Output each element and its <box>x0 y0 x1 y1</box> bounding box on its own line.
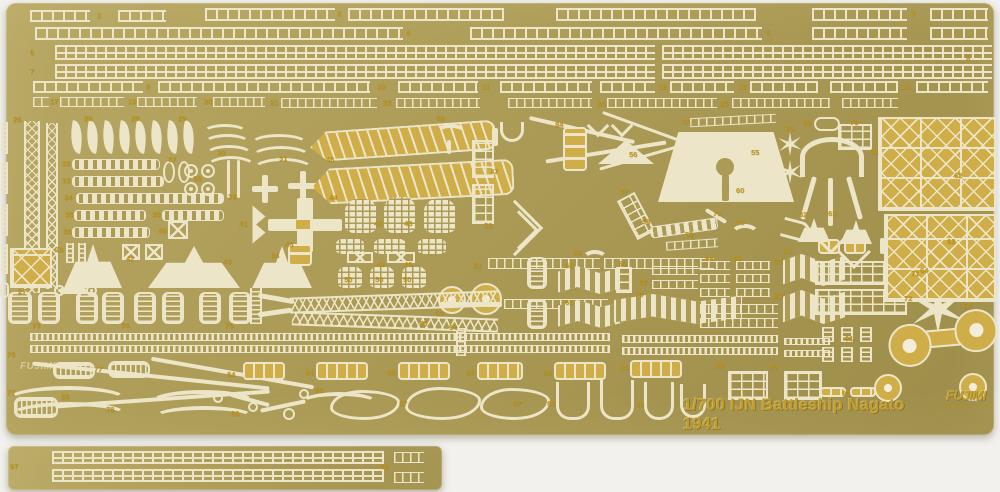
part-number-label: 91 <box>845 335 853 343</box>
part-number-label: 51 <box>473 262 481 270</box>
part-number-label: 60 <box>736 187 744 195</box>
part-number-label: 84 <box>466 369 474 377</box>
part-shape-vlad <box>1 122 8 154</box>
part-number-label: 62 <box>947 238 955 246</box>
part-shape-rail <box>30 10 90 22</box>
part-number-label: 54 <box>682 118 690 126</box>
part-number-label: 40 <box>158 227 166 235</box>
part-number-label: 97 <box>10 463 18 471</box>
part-shape-goldstack <box>243 362 285 380</box>
part-shape-rail <box>670 81 734 93</box>
part-shape-srail <box>281 98 377 108</box>
part-shape-fin <box>179 120 197 154</box>
part-number-label: 86 <box>315 387 323 395</box>
part-number-label: 84 <box>305 369 313 377</box>
part-number-label: 87 <box>513 400 521 408</box>
part-number-label: 78 <box>106 406 114 414</box>
part-number-label: 88 <box>547 400 555 408</box>
part-shape-cage <box>229 292 251 324</box>
part-shape-scurve <box>405 387 481 420</box>
part-shape-rail <box>118 10 166 22</box>
part-number-label: 84 <box>619 364 627 372</box>
part-number-label: 37 <box>168 156 176 164</box>
part-shape-fin <box>99 120 117 154</box>
part-shape-rail3 <box>662 64 992 79</box>
part-shape-goldstack <box>630 360 682 378</box>
part-shape-hatchP <box>309 120 497 163</box>
part-shape-rail3 <box>52 469 384 482</box>
part-number-label: 16 <box>902 83 910 91</box>
part-number-label: 73 <box>32 322 40 330</box>
photo-etch-sheet-photo: 1234567891011121316171920212224252627282… <box>0 0 1000 492</box>
part-shape-vlad <box>66 243 74 263</box>
part-shape-scurve <box>330 390 400 420</box>
part-shape-chain <box>622 335 778 343</box>
part-number-label: 88 <box>636 401 644 409</box>
part-shape-winbox <box>72 227 150 238</box>
part-shape-winbox <box>72 159 160 170</box>
part-number-label: 86 <box>231 410 239 418</box>
part-number-label: 77 <box>94 366 102 374</box>
part-number-label: 28 <box>55 246 63 254</box>
part-shape-cage <box>76 292 98 324</box>
part-shape-vlad <box>1 162 8 194</box>
part-shape-winbox <box>162 210 224 221</box>
part-number-label: 58 <box>642 218 650 226</box>
part-shape-srail <box>60 97 124 107</box>
part-number-label: 43 <box>223 258 231 266</box>
part-shape-rail3 <box>662 45 992 60</box>
part-shape-cage <box>134 292 156 324</box>
brand-subtitle: FUJIMI MOKEI CO.,LTD. <box>934 404 998 409</box>
part-number-label: 45 <box>285 241 293 249</box>
part-shape-srail <box>700 318 778 328</box>
part-shape-srail <box>607 98 717 108</box>
part-shape-horn <box>730 224 760 246</box>
part-number-label: 9 <box>146 83 150 91</box>
part-shape-shield <box>418 238 446 254</box>
part-shape-fin <box>67 120 85 154</box>
part-shape-rail <box>348 8 504 21</box>
part-shape-grid <box>838 124 872 150</box>
part-shape-rail3 <box>55 64 655 79</box>
part-shape-cage <box>102 292 124 324</box>
part-shape-grid <box>472 184 494 224</box>
part-shape-srail <box>732 98 830 108</box>
part-number-label: 86 <box>61 393 69 401</box>
part-shape-rail <box>33 81 143 93</box>
part-shape-rail3 <box>52 451 384 464</box>
part-shape-hatch <box>878 117 996 211</box>
part-shape-srail <box>137 97 197 107</box>
part-shape-srail <box>508 98 592 108</box>
part-shape-fin <box>147 120 165 154</box>
part-number-label: 46 <box>326 156 334 164</box>
part-shape-fin <box>163 120 181 154</box>
part-shape-truss <box>290 290 498 313</box>
part-shape-rail <box>750 81 818 93</box>
part-number-label: 84 <box>387 369 395 377</box>
part-number-label: 98 <box>380 463 388 471</box>
part-number-label: 90 <box>769 363 777 371</box>
part-shape-winbox <box>649 217 718 238</box>
part-number-label: 84 <box>227 371 235 379</box>
part-number-label: 72 <box>904 295 912 303</box>
part-number-label: 39 <box>228 193 236 201</box>
part-shape-bbar <box>722 175 729 201</box>
part-shape-tri <box>253 222 266 244</box>
part-number-label: 21 <box>270 99 278 107</box>
part-shape-xbox <box>145 244 163 260</box>
part-number-label: 8 <box>966 55 970 63</box>
part-number-label: 50 <box>375 276 383 284</box>
part-shape-rail <box>158 81 370 93</box>
part-shape-horn <box>436 124 466 140</box>
part-number-label: 29 <box>178 115 186 123</box>
part-shape-vlad <box>1 244 8 274</box>
part-number-label: 25 <box>720 100 728 108</box>
part-shape-vlad <box>822 327 834 342</box>
part-shape-vlad <box>78 243 86 263</box>
part-number-label: 44 <box>329 194 337 202</box>
part-shape-srail <box>394 472 424 483</box>
part-number-label: 65 <box>565 299 573 307</box>
part-shape-goldstack <box>554 362 606 380</box>
part-number-label: 83 <box>573 249 581 257</box>
part-shape-bar <box>258 308 292 318</box>
part-shape-bar <box>237 160 240 198</box>
part-number-label: 49 <box>376 261 384 269</box>
part-number-label: 53 <box>435 310 443 318</box>
part-shape-rail3 <box>55 45 655 60</box>
part-shape-goldstack <box>477 362 523 380</box>
part-number-label: 59 <box>685 231 693 239</box>
part-number-label: 24 <box>597 100 605 108</box>
part-number-label: 38 <box>193 175 201 183</box>
part-number-label: 6 <box>30 49 34 57</box>
part-shape-srail <box>396 98 480 108</box>
part-shape-cage <box>8 292 32 324</box>
part-shape-bar <box>846 176 863 220</box>
part-shape-truss <box>292 311 498 332</box>
part-shape-bar <box>447 140 451 154</box>
part-shape-ringp <box>283 408 295 420</box>
part-number-label: 13 <box>738 83 746 91</box>
part-shape-chain <box>30 333 610 341</box>
part-number-label: 95 <box>785 125 793 133</box>
part-shape-ringp <box>163 161 175 183</box>
part-number-label: 42 <box>126 255 134 263</box>
part-number-label: 34 <box>64 194 72 202</box>
part-number-label: 26 <box>13 116 21 124</box>
part-shape-rail <box>205 8 335 21</box>
part-shape-srail <box>700 274 730 283</box>
part-shape-shield <box>345 199 377 233</box>
part-number-label: 66 <box>618 260 626 268</box>
part-shape-blob <box>814 117 840 131</box>
part-number-label: 85 <box>419 320 427 328</box>
part-shape-rail <box>556 8 756 21</box>
part-shape-srail <box>394 452 424 463</box>
part-number-label: 94 <box>449 324 457 332</box>
part-number-label: 7 <box>30 68 34 76</box>
part-shape-rail <box>500 81 592 93</box>
part-shape-cage <box>527 257 547 289</box>
part-number-label: 57 <box>620 188 628 196</box>
part-shape-srail <box>213 97 265 107</box>
part-number-label: 61 <box>870 148 878 156</box>
part-number-label: 64 <box>920 267 928 275</box>
part-number-label: 79 <box>713 210 721 218</box>
part-number-label: 29 <box>84 115 92 123</box>
part-number-label: 74 <box>121 322 129 330</box>
part-shape-dotc <box>201 182 215 196</box>
part-shape-rail <box>916 81 988 93</box>
part-number-label: 19 <box>128 98 136 106</box>
part-shape-rail <box>35 27 403 40</box>
part-number-label: 32 <box>62 160 70 168</box>
part-shape-rail <box>830 81 898 93</box>
part-shape-fin <box>131 120 149 154</box>
part-shape-zig <box>558 266 622 294</box>
part-number-label: 88 <box>436 115 444 123</box>
part-shape-winbox <box>72 176 164 187</box>
part-shape-goldstackV <box>563 127 587 171</box>
part-number-label: 84 <box>555 121 563 129</box>
part-shape-hatch <box>10 248 52 288</box>
sheet-title: 1/700 IJN Battleship Nagato 1941 <box>683 396 943 434</box>
part-number-label: 84 <box>543 369 551 377</box>
brand-name: FUJIMI <box>934 388 998 403</box>
part-number-label: 75 <box>225 322 233 330</box>
part-shape-rail <box>930 8 988 21</box>
part-number-label: 5 <box>766 29 770 37</box>
part-number-label: 3 <box>911 10 915 18</box>
part-shape-vlad <box>860 347 872 362</box>
part-shape-srail <box>700 304 778 314</box>
part-number-label: 55 <box>751 149 759 157</box>
part-number-label: 35 <box>152 211 160 219</box>
part-number-label: 33 <box>62 177 70 185</box>
part-shape-dotc <box>184 182 198 196</box>
part-shape-srail <box>736 274 770 283</box>
part-shape-dotc <box>201 164 215 178</box>
part-shape-ubrak <box>600 380 634 420</box>
part-number-label: 12 <box>658 83 666 91</box>
brand-logo: FUJIMI FUJIMI MOKEI CO.,LTD. <box>934 388 998 409</box>
part-number-label: 84 <box>271 252 279 260</box>
part-shape-cage <box>199 292 221 324</box>
part-number-label: 70 <box>635 291 643 299</box>
part-number-label: 22 <box>383 99 391 107</box>
part-number-label: 50 <box>403 276 411 284</box>
part-number-label: 17 <box>50 98 58 106</box>
part-number-label: 67 <box>639 279 647 287</box>
part-shape-cage <box>162 292 184 324</box>
part-shape-goldstack <box>398 362 450 380</box>
part-shape-rail <box>398 81 478 93</box>
part-number-label: 4 <box>406 29 410 37</box>
part-shape-ubrak <box>644 382 674 420</box>
part-shape-goldsq <box>295 219 311 230</box>
etched-brand-logo: FUJIMI <box>20 361 56 372</box>
part-number-label: 31 <box>279 155 287 163</box>
part-shape-hatch <box>884 214 996 302</box>
part-shape-horn <box>582 250 608 268</box>
part-number-label: 62 <box>954 172 962 180</box>
part-shape-ubrak <box>500 122 524 142</box>
part-shape-dogbone <box>886 307 1000 368</box>
part-number-label: 56 <box>629 151 637 159</box>
part-shape-srail <box>690 114 776 127</box>
part-shape-srail <box>700 288 730 297</box>
part-shape-srail <box>736 288 770 297</box>
part-shape-vlad <box>822 347 834 362</box>
part-shape-srail <box>33 97 49 107</box>
part-number-label: 65 <box>774 292 782 300</box>
part-shape-bcirc <box>716 158 734 176</box>
part-shape-srail <box>652 266 698 275</box>
part-shape-winbox <box>76 193 224 204</box>
part-number-label: 35 <box>65 211 73 219</box>
part-number-label: 81 <box>783 247 791 255</box>
part-shape-grid <box>616 267 632 293</box>
part-shape-goldstack <box>316 362 368 380</box>
part-shape-rail <box>470 27 762 40</box>
part-shape-chain <box>622 347 778 355</box>
part-shape-star <box>778 132 802 156</box>
part-number-label: 10 <box>377 83 385 91</box>
part-shape-vlad <box>1 204 8 236</box>
part-number-label: 83 <box>736 219 744 227</box>
part-number-label: 36 <box>63 228 71 236</box>
part-number-label: 30 <box>217 149 225 157</box>
part-number-label: 41 <box>239 220 247 228</box>
part-shape-rail <box>600 81 655 93</box>
part-number-label: 68 <box>705 255 713 263</box>
part-shape-srail <box>842 98 898 108</box>
part-shape-rail <box>930 27 988 40</box>
part-shape-cage <box>38 292 60 324</box>
part-shape-chain <box>30 345 610 353</box>
part-number-label: 52 <box>484 222 492 230</box>
part-number-label: 60 <box>803 119 811 127</box>
part-number-label: 27 <box>18 288 26 296</box>
part-shape-xbox <box>168 221 188 239</box>
part-number-label: 82 <box>799 211 807 219</box>
part-number-label: 65 <box>774 258 782 266</box>
part-number-label: 77 <box>7 389 15 397</box>
part-number-label: 48 <box>374 220 382 228</box>
part-number-label: 49 <box>404 261 412 269</box>
part-number-label: 89 <box>715 362 723 370</box>
part-shape-fin <box>83 120 101 154</box>
part-number-label: 11 <box>482 83 490 91</box>
part-number-label: 71 <box>911 270 919 278</box>
part-shape-vlad <box>860 327 872 342</box>
part-number-label: 1 <box>97 12 101 20</box>
part-number-label: 50 <box>344 276 352 284</box>
part-number-label: 69 <box>733 255 741 263</box>
part-shape-winbox <box>74 210 146 221</box>
part-number-label: 20 <box>204 98 212 106</box>
part-number-label: 47 <box>490 168 498 176</box>
part-shape-fin <box>115 120 133 154</box>
part-number-label: 63 <box>828 210 836 218</box>
part-number-label: 65 <box>565 262 573 270</box>
part-number-label: 64 <box>963 302 971 310</box>
part-shape-ubrak <box>556 382 590 420</box>
part-shape-srail <box>652 280 698 289</box>
part-shape-xbox <box>347 252 373 263</box>
part-number-label: 76 <box>7 351 15 359</box>
part-number-label: 73 <box>850 119 858 127</box>
part-shape-bar <box>258 293 294 304</box>
part-number-label: 87 <box>399 400 407 408</box>
part-shape-cage <box>527 299 547 329</box>
part-shape-srail <box>666 238 719 251</box>
part-number-label: 48 <box>404 220 412 228</box>
part-shape-rail <box>812 27 907 40</box>
part-shape-shield <box>424 199 456 233</box>
part-shape-rail <box>812 8 907 21</box>
part-number-label: 29 <box>131 115 139 123</box>
part-shape-vlad <box>841 347 853 362</box>
part-number-label: 2 <box>337 10 341 18</box>
